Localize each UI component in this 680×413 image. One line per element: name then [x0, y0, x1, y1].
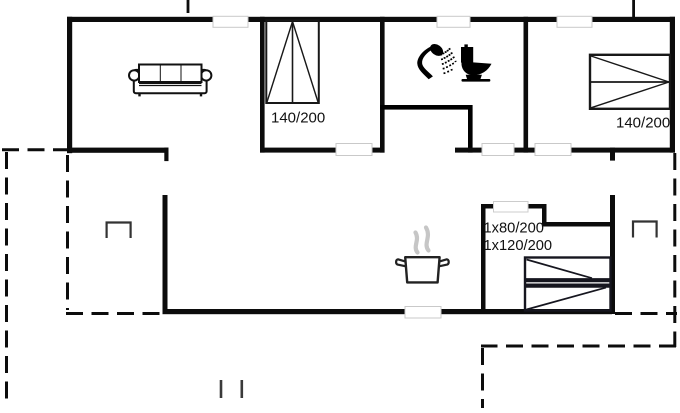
svg-text:1x80/200: 1x80/200 — [484, 221, 544, 237]
svg-text:1x120/200: 1x120/200 — [484, 238, 553, 254]
svg-text:140/200: 140/200 — [271, 110, 325, 127]
svg-text:140/200: 140/200 — [616, 115, 670, 132]
